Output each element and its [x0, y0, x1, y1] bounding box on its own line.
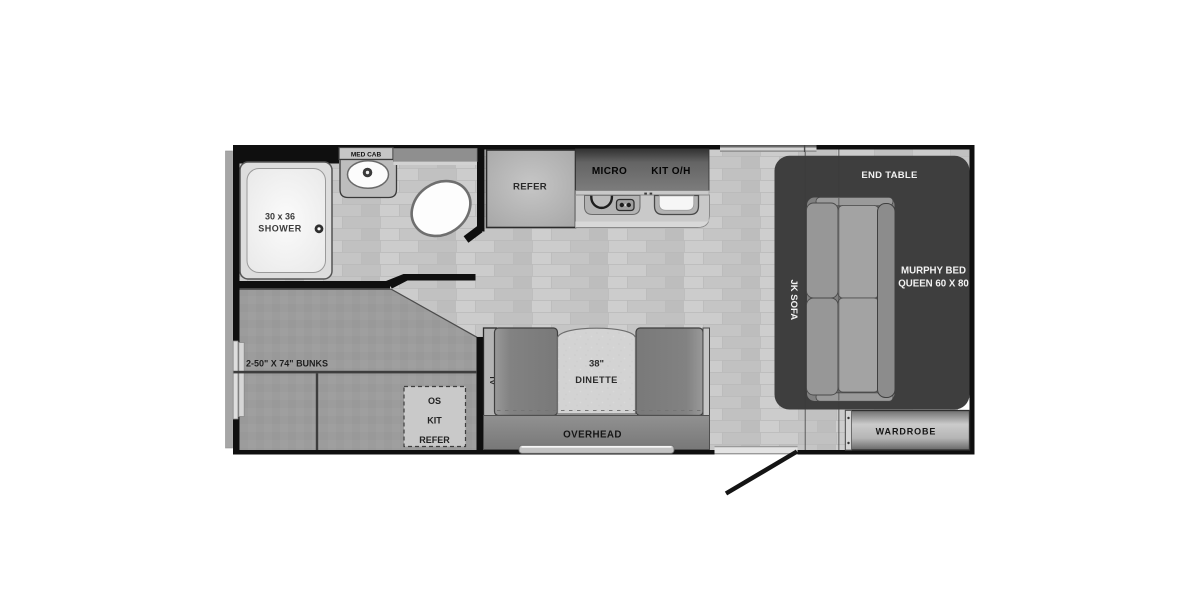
svg-text:30 x 36: 30 x 36	[265, 212, 295, 222]
svg-text:END TABLE: END TABLE	[861, 170, 917, 181]
svg-text:MED CAB: MED CAB	[351, 151, 382, 158]
svg-text:REFER: REFER	[513, 182, 547, 193]
svg-text:38": 38"	[589, 359, 604, 370]
svg-text:WARDROBE: WARDROBE	[876, 427, 937, 437]
svg-text:SHOWER: SHOWER	[258, 224, 302, 234]
svg-text:JK SOFA: JK SOFA	[788, 279, 799, 320]
svg-text:MICRO: MICRO	[592, 166, 627, 177]
svg-text:QUEEN 60 X 80: QUEEN 60 X 80	[898, 279, 969, 290]
svg-text:DINETTE: DINETTE	[575, 375, 618, 385]
svg-text:MURPHY BED: MURPHY BED	[901, 266, 966, 277]
svg-text:REFER: REFER	[419, 435, 450, 445]
svg-text:KIT O/H: KIT O/H	[651, 166, 690, 177]
svg-text:OVERHEAD: OVERHEAD	[563, 430, 622, 441]
svg-text:OS: OS	[428, 396, 441, 406]
svg-text:2-50" X 74" BUNKS: 2-50" X 74" BUNKS	[246, 359, 328, 369]
svg-text:KIT: KIT	[427, 416, 442, 426]
